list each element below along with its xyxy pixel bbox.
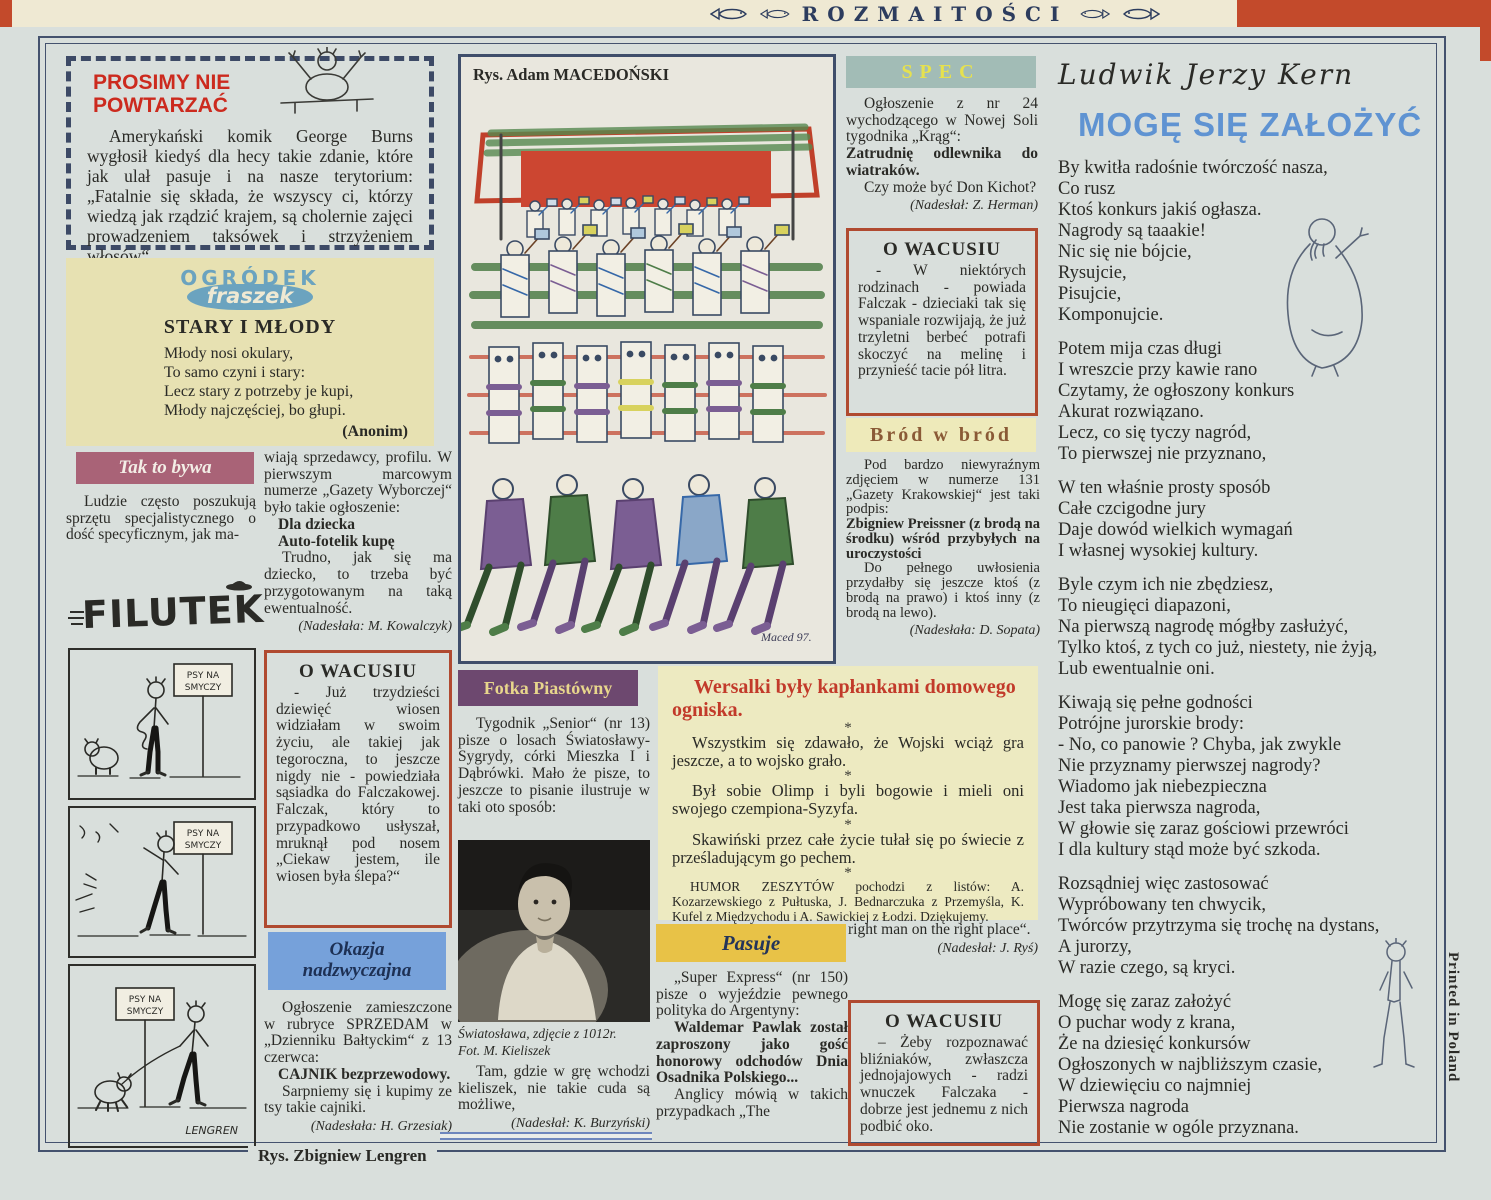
poem-stanza: W ten właśnie prosty sposób Całe czcigod…	[1058, 478, 1458, 562]
humor-zeszytow-box: Wersalki były kapłankami domowego ognisk…	[658, 666, 1038, 920]
comic-sign-line2: SMYCZY	[127, 1007, 164, 1017]
piastowna-photo	[458, 840, 650, 1022]
brod-text: Pod bardzo niewyraźnym zdjęciem w numerz…	[846, 458, 1040, 638]
section-header-brod-w-brod: Bród w bród	[846, 418, 1036, 452]
humor-footer: HUMOR ZESZYTÓW pochodzi z listów: A. Koz…	[672, 879, 1024, 924]
fraszek-logo-line2: fraszek	[187, 284, 314, 310]
poem-stanza: Kiwają się pełne godności Potrójne juror…	[1058, 693, 1458, 861]
thin-man-doodle	[1364, 938, 1430, 1072]
prosimy-nie-powtarzac-box: PROSIMY NIE POWTARZAĆ Amerykański komik …	[66, 56, 434, 250]
newspaper-page: { "banner": { "title": "ROZMAITOŚCI" }, …	[0, 0, 1491, 1200]
right-edge-orange-sliver	[1480, 27, 1491, 61]
fish-icon	[710, 6, 750, 22]
section-header-pasuje: Pasuje	[656, 924, 846, 962]
comic-panel-2: PSY NA SMYCZY	[68, 806, 256, 958]
comic-sign-line1: PSY NA	[187, 671, 220, 681]
fraszka-text: Młody nosi okulary, To samo czyni i star…	[164, 345, 434, 421]
section-header-spec: SPEC	[846, 56, 1036, 88]
o-wacusiu-box-2: O WACUSIU - W niektórych rodzinach - pow…	[846, 228, 1038, 416]
prosimy-body: Amerykański komik George Burns wygłosił …	[87, 127, 413, 267]
okazja-text: Ogłoszenie zamieszczone w rubryce SPRZED…	[264, 1000, 452, 1134]
o-wacusiu-box-1: O WACUSIU - Już trzydzieści dziewięć wio…	[264, 650, 452, 928]
ogrodek-fraszek-box: OGRÓDEK fraszek STARY I MŁODY Młody nosi…	[66, 258, 434, 446]
pasuje-text: „Super Express“ (nr 150) pisze o wyjeźdz…	[656, 970, 848, 1121]
humor-item: Wszystkim się zdawało, że Wojski wciąż g…	[672, 734, 1024, 770]
poem-stanza: Potem mija czas długi I wreszcie przy ka…	[1058, 339, 1458, 465]
comic-sign-line1: PSY NA	[187, 829, 220, 839]
comic-signature: LENGREN	[185, 1124, 238, 1137]
star-separator: *	[672, 867, 1024, 879]
humor-item: Skawiński przez całe życie tułał się po …	[672, 831, 1024, 867]
drawing-signature: Maced 97.	[760, 630, 812, 644]
comic-panel-1: PSY NA SMYCZY	[68, 648, 256, 800]
masthead-title: ROZMAITOŚCI	[802, 2, 1069, 26]
o-wacusiu-box-3: O WACUSIU – Żeby rozpoznawać bliźniaków,…	[848, 1000, 1040, 1146]
poem-stanza: Byle czym ich nie zbędziesz, To nieugięc…	[1058, 575, 1458, 680]
fraszka-author: (Anonim)	[66, 423, 408, 441]
humor-title: Wersalki były kapłankami domowego ognisk…	[672, 676, 1024, 722]
drawing-caption: Rys. Adam MACEDOŃSKI	[473, 65, 669, 85]
section-header-fotka-piastowny: Fotka Piastówny	[458, 670, 638, 706]
comic-panel-2-art: PSY NA SMYCZY	[70, 808, 254, 956]
fish-icon	[760, 7, 792, 21]
tak-to-bywa-text: Ludzie często poszukują sprzętu specjali…	[66, 494, 256, 544]
fish-icon	[1120, 6, 1160, 22]
comic-panel-3-art: PSY NA SMYCZY LENGREN	[70, 966, 254, 1146]
sitting-figure-doodle	[261, 47, 391, 117]
parade-illustration: Maced 97.	[461, 89, 833, 655]
fotka-text: Tygodnik „Senior“ (nr 13) pisze o losach…	[458, 716, 650, 816]
comic-sign-line2: SMYCZY	[185, 841, 222, 851]
comic-panel-1-art: PSY NA SMYCZY	[70, 650, 254, 798]
comic-credit: Rys. Zbigniew Lengren	[248, 1146, 437, 1166]
star-separator: *	[672, 819, 1024, 831]
macedonski-drawing-frame: Rys. Adam MACEDOŃSKI	[458, 54, 836, 664]
spec-text: Ogłoszenie z nr 24 wychodzącego w Nowej …	[846, 96, 1038, 214]
pasuje-continuation: right man on the right place“. (Nadesłał…	[848, 922, 1038, 956]
comic-sign-line1: PSY NA	[129, 995, 162, 1005]
section-header-tak-to-bywa: Tak to bywa	[76, 452, 254, 484]
printed-in-poland: Printed in Poland	[1444, 952, 1461, 1082]
comic-sign-line2: SMYCZY	[185, 683, 222, 693]
top-left-orange-block	[0, 0, 12, 27]
prosimy-title: PROSIMY NIE POWTARZAĆ	[93, 71, 230, 117]
tak-to-bywa-continuation: wiają sprzedawcy, profilu. W pierwszym m…	[264, 450, 452, 634]
filutek-logo: FILUTEK	[64, 572, 264, 646]
photo-caption: Światosława, zdjęcie z 1012r. Fot. M. Ki…	[458, 1026, 658, 1060]
poem-stanza: By kwitła radośnie twórczość nasza, Co r…	[1058, 158, 1458, 326]
section-header-okazja: Okazja nadzwyczajna	[268, 932, 446, 990]
piastowna-photo-art	[458, 840, 650, 1022]
plump-man-doodle	[1272, 210, 1382, 378]
masthead-banner: ROZMAITOŚCI	[620, 0, 1250, 27]
fraszek-logo: OGRÓDEK fraszek	[66, 258, 434, 310]
comic-panel-3: PSY NA SMYCZY LENGREN	[68, 964, 256, 1148]
fish-icon	[1078, 7, 1110, 21]
column-divider	[440, 1132, 652, 1140]
humor-item: Był sobie Olimp i byli bogowie i mieli o…	[672, 782, 1024, 818]
fotka-after-text: Tam, gdzie w grę wchodzi kieliszek, nie …	[458, 1064, 650, 1131]
top-right-orange-block	[1237, 0, 1491, 27]
poem-title: MOGĘ SIĘ ZAŁOŻYĆ	[1078, 106, 1422, 144]
poem-author: Ludwik Jerzy Kern	[1058, 58, 1354, 91]
fraszka-title: STARY I MŁODY	[66, 316, 434, 339]
